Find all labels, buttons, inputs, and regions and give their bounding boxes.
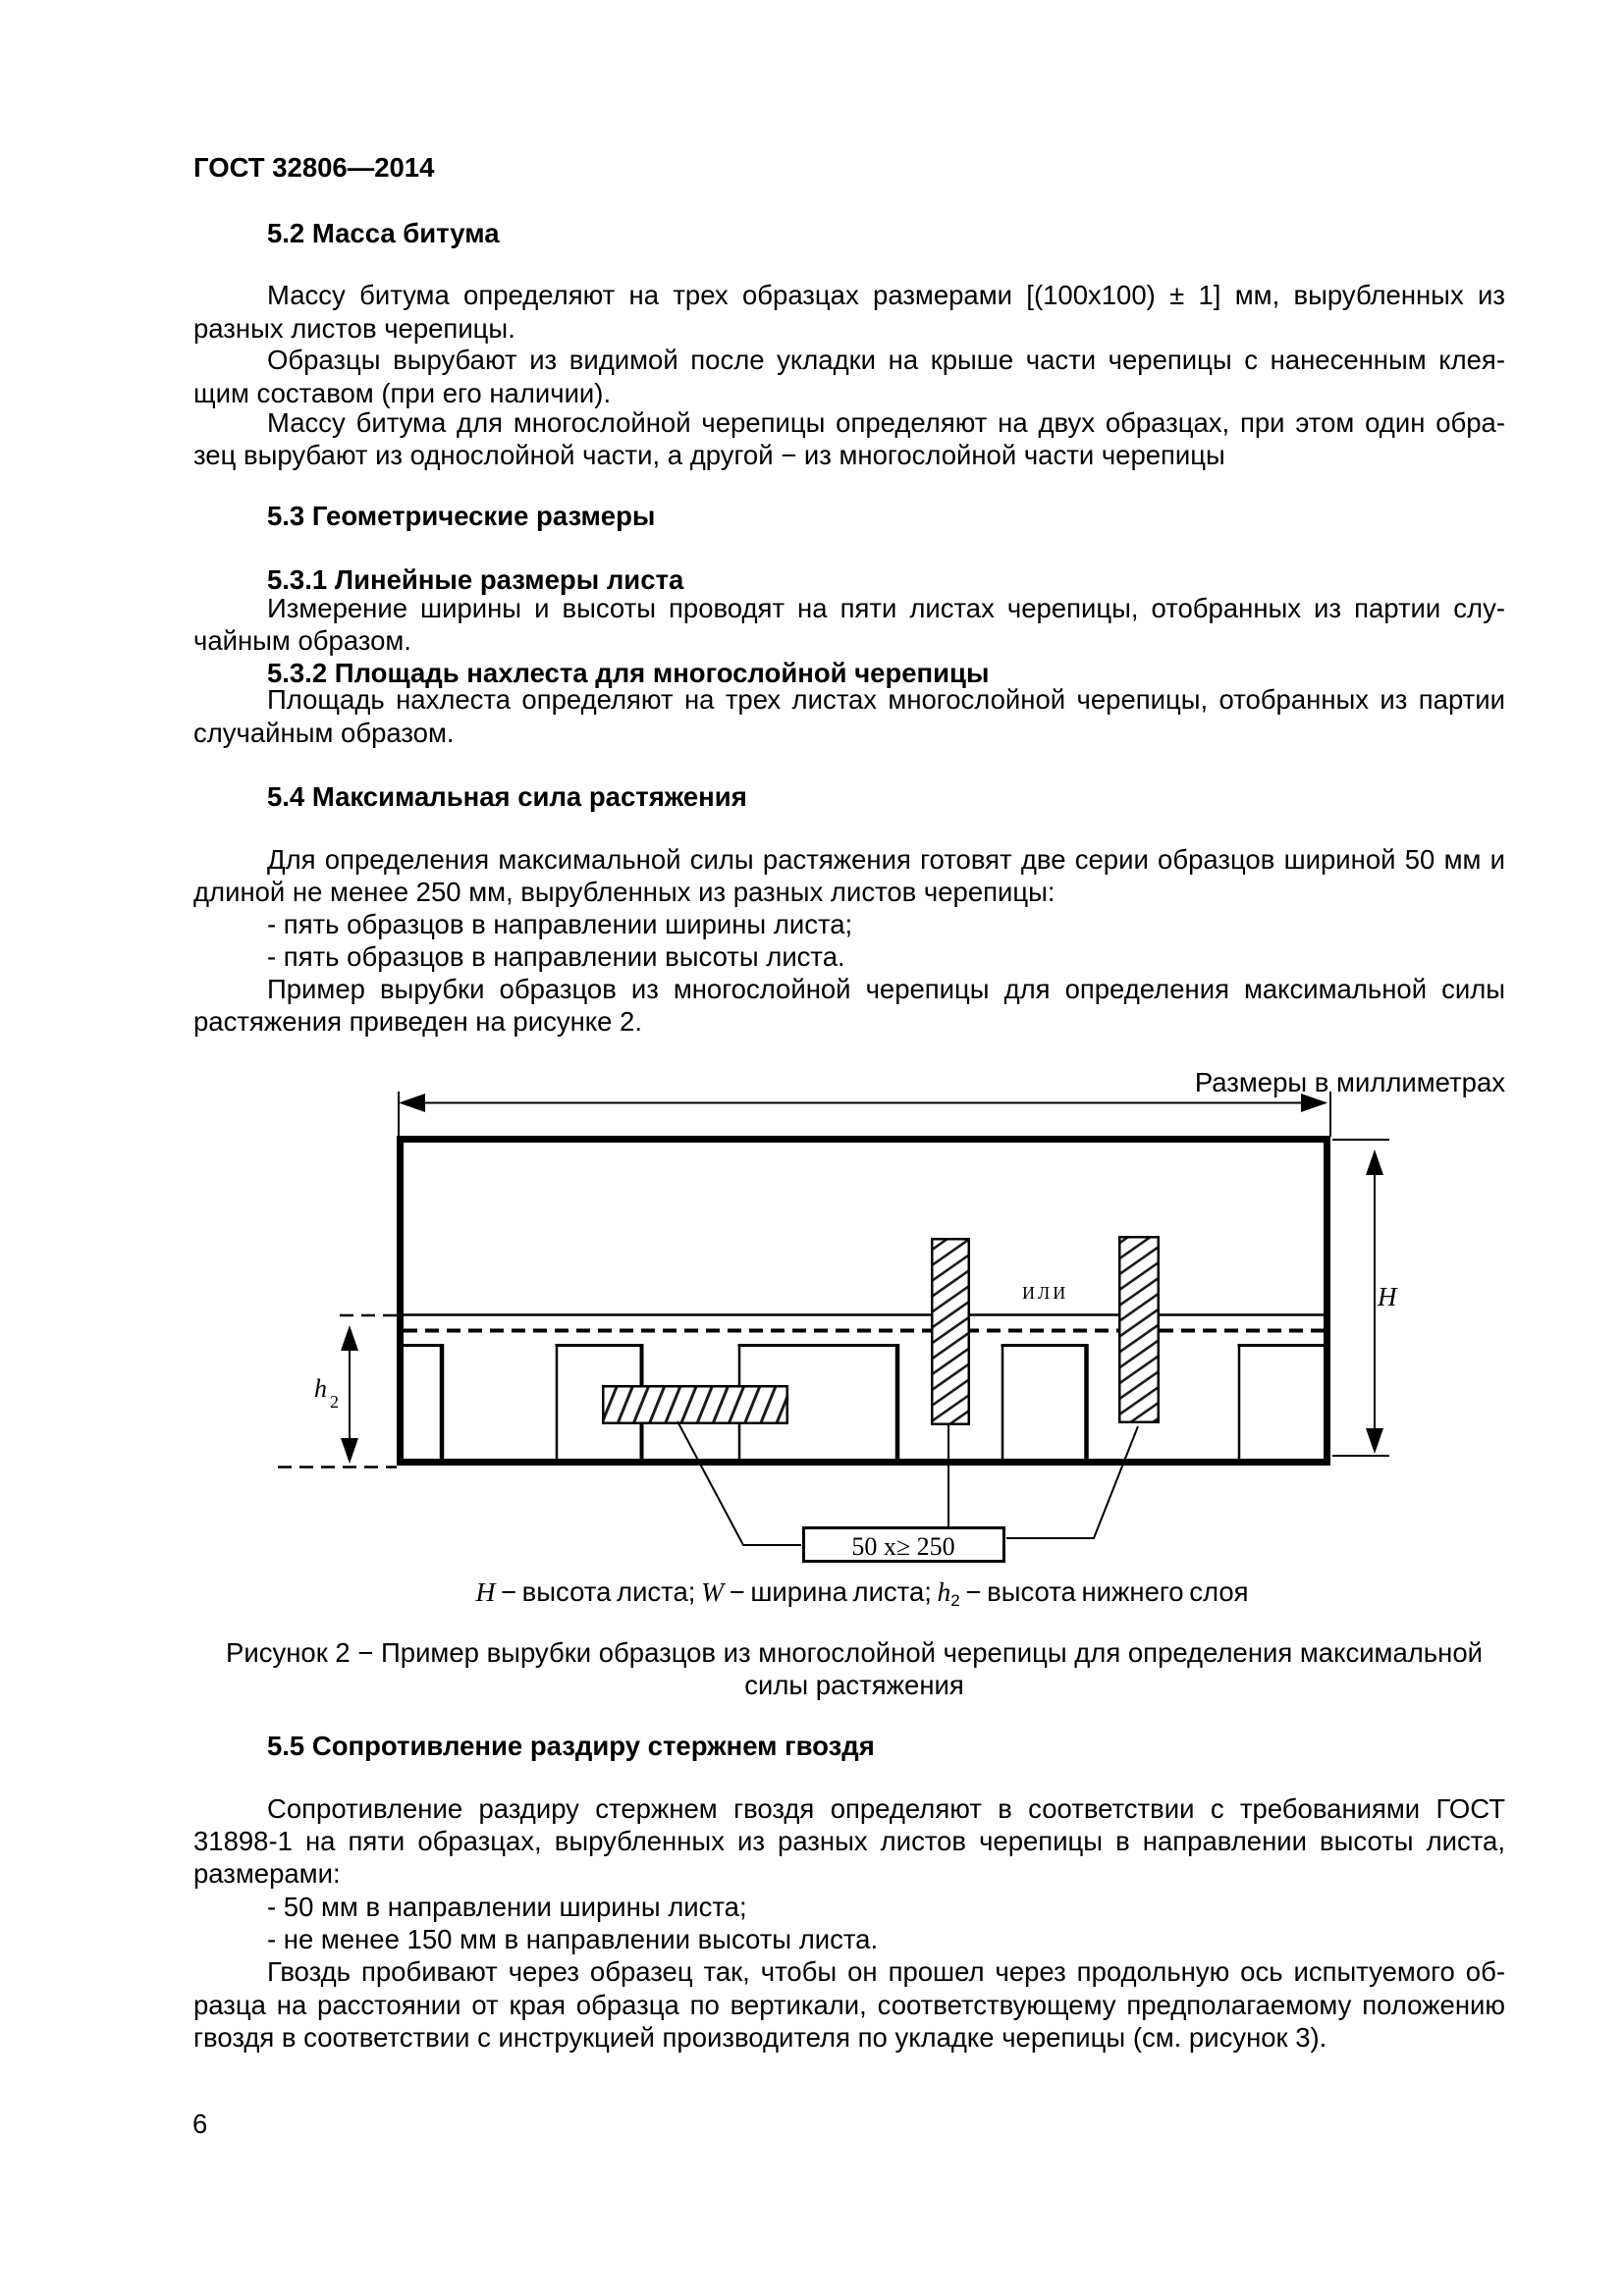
svg-text:Размеры в миллиметрах: Размеры в миллиметрах — [1195, 1067, 1505, 1097]
svg-text:ИЛИ: ИЛИ — [1022, 1283, 1068, 1303]
svg-text:h: h — [314, 1374, 327, 1403]
svg-text:H: H — [1377, 1282, 1398, 1311]
svg-text:2: 2 — [330, 1392, 339, 1412]
svg-text:50 х≥ 250: 50 х≥ 250 — [851, 1532, 954, 1561]
